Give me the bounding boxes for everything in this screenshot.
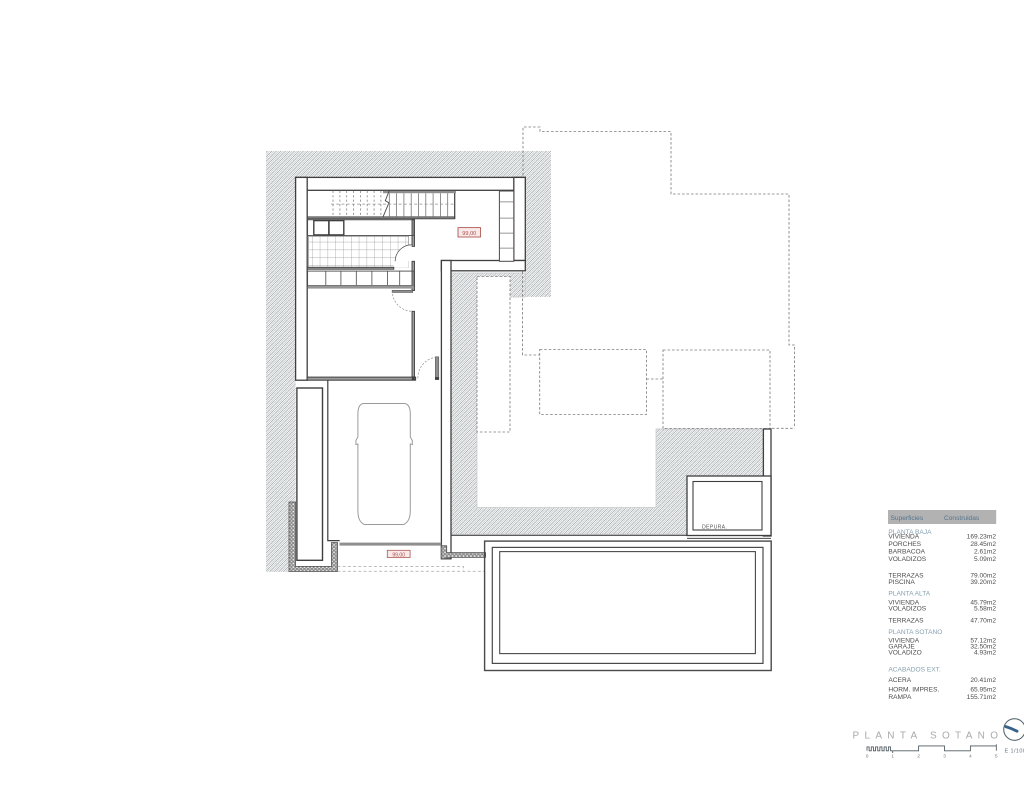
- svg-text:VOLADIZO: VOLADIZO: [888, 650, 921, 657]
- svg-text:5.58m2: 5.58m2: [974, 606, 996, 613]
- svg-text:VOLADIZOS: VOLADIZOS: [888, 556, 926, 563]
- svg-text:0: 0: [866, 754, 869, 759]
- svg-text:99,00: 99,00: [462, 231, 476, 237]
- svg-text:47.70m2: 47.70m2: [970, 618, 996, 625]
- svg-text:ACABADOS EXT.: ACABADOS EXT.: [888, 667, 941, 674]
- svg-text:2.61m2: 2.61m2: [974, 548, 996, 555]
- svg-text:4.93m2: 4.93m2: [974, 650, 996, 657]
- svg-text:VIVIENDA: VIVIENDA: [888, 534, 919, 541]
- svg-text:PLANTA SOTANO: PLANTA SOTANO: [853, 731, 1004, 742]
- svg-text:5.09m2: 5.09m2: [974, 556, 996, 563]
- svg-text:BARBACOA: BARBACOA: [888, 548, 925, 555]
- svg-text:169.23m2: 169.23m2: [967, 534, 997, 541]
- svg-text:PLANTA SOTANO: PLANTA SOTANO: [888, 629, 942, 636]
- svg-text:99,00: 99,00: [392, 552, 405, 558]
- svg-text:20.41m2: 20.41m2: [970, 677, 996, 684]
- svg-text:TERRAZAS: TERRAZAS: [888, 618, 924, 625]
- svg-text:RAMPA: RAMPA: [888, 694, 912, 701]
- svg-text:Construidas: Construidas: [944, 515, 980, 522]
- svg-text:3: 3: [943, 754, 946, 759]
- svg-text:39.20m2: 39.20m2: [970, 579, 996, 586]
- svg-text:1: 1: [891, 754, 894, 759]
- svg-text:155.71m2: 155.71m2: [967, 694, 997, 701]
- svg-text:PORCHES: PORCHES: [888, 541, 921, 548]
- svg-text:DEPURA.: DEPURA.: [702, 525, 727, 531]
- svg-text:VOLADIZOS: VOLADIZOS: [888, 606, 926, 613]
- svg-text:PLANTA ALTA: PLANTA ALTA: [888, 591, 930, 598]
- svg-text:PISCINA: PISCINA: [888, 579, 915, 586]
- svg-text:Superficies: Superficies: [891, 515, 924, 522]
- svg-text:65.95m2: 65.95m2: [970, 687, 996, 694]
- svg-text:HORM. IMPRES.: HORM. IMPRES.: [888, 687, 939, 694]
- svg-text:4: 4: [969, 754, 972, 759]
- svg-text:28.45m2: 28.45m2: [970, 541, 996, 548]
- svg-text:E 1/100: E 1/100: [1005, 749, 1024, 755]
- svg-text:2: 2: [917, 754, 920, 759]
- svg-text:5: 5: [995, 754, 998, 759]
- svg-text:ACERA: ACERA: [888, 677, 911, 684]
